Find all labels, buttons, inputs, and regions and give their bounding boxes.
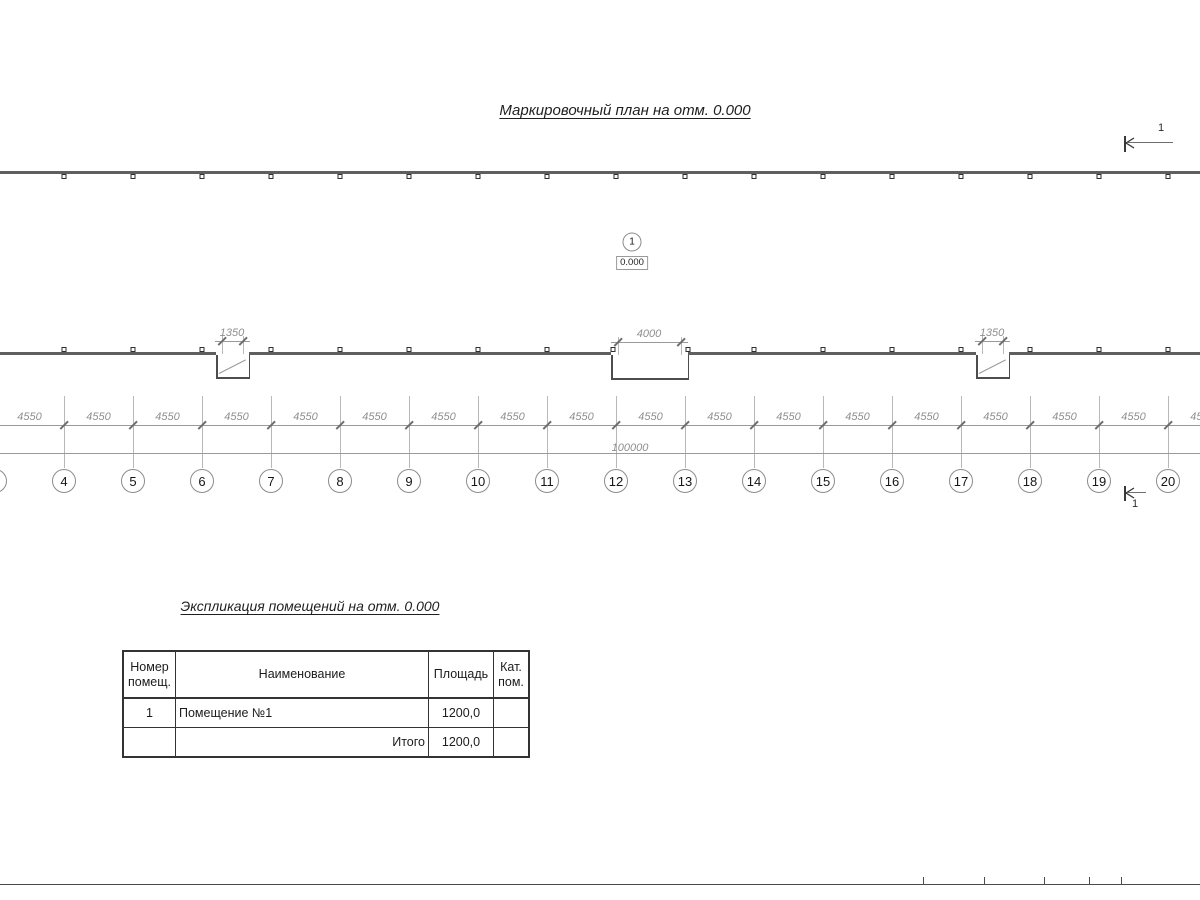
header-category: Кат. пом. — [494, 651, 530, 698]
title-block-divider — [984, 877, 985, 884]
niche-side — [1009, 355, 1011, 378]
niche-side — [976, 355, 978, 378]
column-marker — [200, 174, 205, 179]
bay-dimension-label: 4550 — [431, 411, 455, 423]
sheet-frame-line — [0, 884, 1200, 886]
opening-width-label: 4000 — [637, 328, 661, 340]
axis-line — [1168, 396, 1169, 468]
column-marker — [1028, 347, 1033, 352]
axis-line — [754, 396, 755, 468]
bottom-wall-segment — [249, 352, 611, 355]
axis-bubble: 9 — [397, 469, 421, 493]
bottom-wall-segment — [0, 352, 216, 355]
column-marker — [338, 347, 343, 352]
column-marker — [890, 347, 895, 352]
bay-dimension-label: 4550 — [569, 411, 593, 423]
section-number: 1 — [1158, 122, 1164, 134]
bay-dimension-label: 4550 — [983, 411, 1007, 423]
axis-bubble: 13 — [673, 469, 697, 493]
bay-dimension-label: 4550 — [224, 411, 248, 423]
column-marker — [200, 347, 205, 352]
door-swing-line — [219, 359, 246, 374]
bay-dimension-label: 4550 — [845, 411, 869, 423]
column-marker — [1028, 174, 1033, 179]
bay-dimension-label: 4550 — [1121, 411, 1145, 423]
column-marker — [821, 347, 826, 352]
axis-line — [892, 396, 893, 468]
column-marker — [821, 174, 826, 179]
axis-line — [1099, 396, 1100, 468]
table-total-row: Итого 1200,0 — [123, 728, 529, 758]
column-marker — [959, 347, 964, 352]
axis-line — [271, 396, 272, 468]
table-row: 1 Помещение №1 1200,0 — [123, 698, 529, 728]
bay-dimension-label: 4550 — [155, 411, 179, 423]
axis-bubble: 19 — [1087, 469, 1111, 493]
column-marker — [338, 174, 343, 179]
column-marker — [890, 174, 895, 179]
axis-bubble: 12 — [604, 469, 628, 493]
door-swing-line — [979, 359, 1006, 374]
bay-dimension-label: 4550 — [17, 411, 41, 423]
explication-table: Номер помещ. Наименование Площадь Кат. п… — [122, 650, 530, 758]
axis-bubble: 5 — [121, 469, 145, 493]
niche-bottom — [611, 378, 689, 380]
bay-dimension-label: 4550 — [776, 411, 800, 423]
opening-width-label: 1350 — [980, 327, 1004, 339]
title-block-divider — [923, 877, 924, 884]
axis-line — [409, 396, 410, 468]
niche-side — [216, 355, 218, 378]
section-number: 1 — [1132, 498, 1138, 510]
column-marker — [752, 347, 757, 352]
column-marker — [545, 347, 550, 352]
title-block-divider — [1089, 877, 1090, 884]
column-marker — [752, 174, 757, 179]
dimension-line — [611, 342, 688, 343]
axis-line — [1030, 396, 1031, 468]
cell-room-area: 1200,0 — [429, 698, 494, 728]
room-elevation-box: 0.000 — [616, 256, 648, 270]
column-marker — [269, 174, 274, 179]
plan-title: Маркировочный план на отм. 0.000 — [440, 102, 810, 119]
top-wall — [0, 171, 1200, 174]
total-dimension-line — [0, 453, 1200, 454]
column-marker — [683, 174, 688, 179]
column-marker — [1166, 347, 1171, 352]
niche-bottom — [976, 377, 1010, 379]
axis-line — [64, 396, 65, 468]
column-marker — [545, 174, 550, 179]
column-marker — [1166, 174, 1171, 179]
bay-dimension-label: 4550 — [362, 411, 386, 423]
cell-room-number — [123, 728, 176, 758]
axis-line — [202, 396, 203, 468]
header-name: Наименование — [176, 651, 429, 698]
axis-bubble-partial — [0, 469, 7, 493]
header-room-number: Номер помещ. — [123, 651, 176, 698]
title-block-divider — [1121, 877, 1122, 884]
column-marker — [131, 347, 136, 352]
axis-bubble: 18 — [1018, 469, 1042, 493]
axis-bubble: 8 — [328, 469, 352, 493]
axis-line — [961, 396, 962, 468]
explication-title: Экспликация помещений на отм. 0.000 — [150, 598, 470, 614]
column-marker — [62, 347, 67, 352]
axis-bubble: 6 — [190, 469, 214, 493]
axis-line — [547, 396, 548, 468]
drawing-sheet: Маркировочный план на отм. 0.000 1 1 0.0… — [0, 0, 1200, 900]
axis-bubble: 16 — [880, 469, 904, 493]
axis-line — [616, 396, 617, 468]
column-marker — [614, 174, 619, 179]
axis-bubble: 10 — [466, 469, 490, 493]
niche-side — [688, 355, 690, 379]
column-marker — [610, 347, 615, 352]
bay-dimension-label: 4550 — [1052, 411, 1076, 423]
title-block-divider — [1044, 877, 1045, 884]
cell-total-area: 1200,0 — [429, 728, 494, 758]
column-marker — [1097, 174, 1102, 179]
cell-room-cat — [494, 698, 530, 728]
column-marker — [959, 174, 964, 179]
axis-bubble: 17 — [949, 469, 973, 493]
bay-dimension-label: 4550 — [1190, 411, 1200, 423]
cell-room-name: Помещение №1 — [176, 698, 429, 728]
bay-dimension-label: 4550 — [638, 411, 662, 423]
column-marker — [407, 174, 412, 179]
column-marker — [476, 174, 481, 179]
table-header-row: Номер помещ. Наименование Площадь Кат. п… — [123, 651, 529, 698]
opening-width-label: 1350 — [220, 327, 244, 339]
column-marker — [685, 347, 690, 352]
header-area: Площадь — [429, 651, 494, 698]
bottom-wall-segment — [688, 352, 976, 355]
axis-line — [823, 396, 824, 468]
axis-bubble: 15 — [811, 469, 835, 493]
axis-bubble: 20 — [1156, 469, 1180, 493]
niche-side — [249, 355, 251, 378]
section-arrowhead-icon — [1125, 137, 1135, 149]
room-number-bubble: 1 — [623, 233, 642, 252]
total-dimension-label: 100000 — [612, 442, 649, 454]
column-marker — [1097, 347, 1102, 352]
bay-dimension-label: 4550 — [293, 411, 317, 423]
niche-bottom — [216, 377, 250, 379]
axis-bubble: 7 — [259, 469, 283, 493]
cell-total-cat — [494, 728, 530, 758]
bay-dimension-label: 4550 — [86, 411, 110, 423]
column-marker — [62, 174, 67, 179]
axis-line — [478, 396, 479, 468]
axis-line — [685, 396, 686, 468]
bay-dimension-label: 4550 — [914, 411, 938, 423]
niche-side — [611, 355, 613, 379]
column-marker — [269, 347, 274, 352]
cell-room-number: 1 — [123, 698, 176, 728]
bay-dimension-label: 4550 — [500, 411, 524, 423]
bay-dimension-line — [0, 425, 1200, 426]
axis-bubble: 14 — [742, 469, 766, 493]
axis-bubble: 11 — [535, 469, 559, 493]
cell-total-label: Итого — [176, 728, 429, 758]
axis-bubble: 4 — [52, 469, 76, 493]
column-marker — [476, 347, 481, 352]
axis-line — [133, 396, 134, 468]
column-marker — [407, 347, 412, 352]
bay-dimension-label: 4550 — [707, 411, 731, 423]
column-marker — [131, 174, 136, 179]
bottom-wall-segment — [1009, 352, 1200, 355]
axis-line — [340, 396, 341, 468]
